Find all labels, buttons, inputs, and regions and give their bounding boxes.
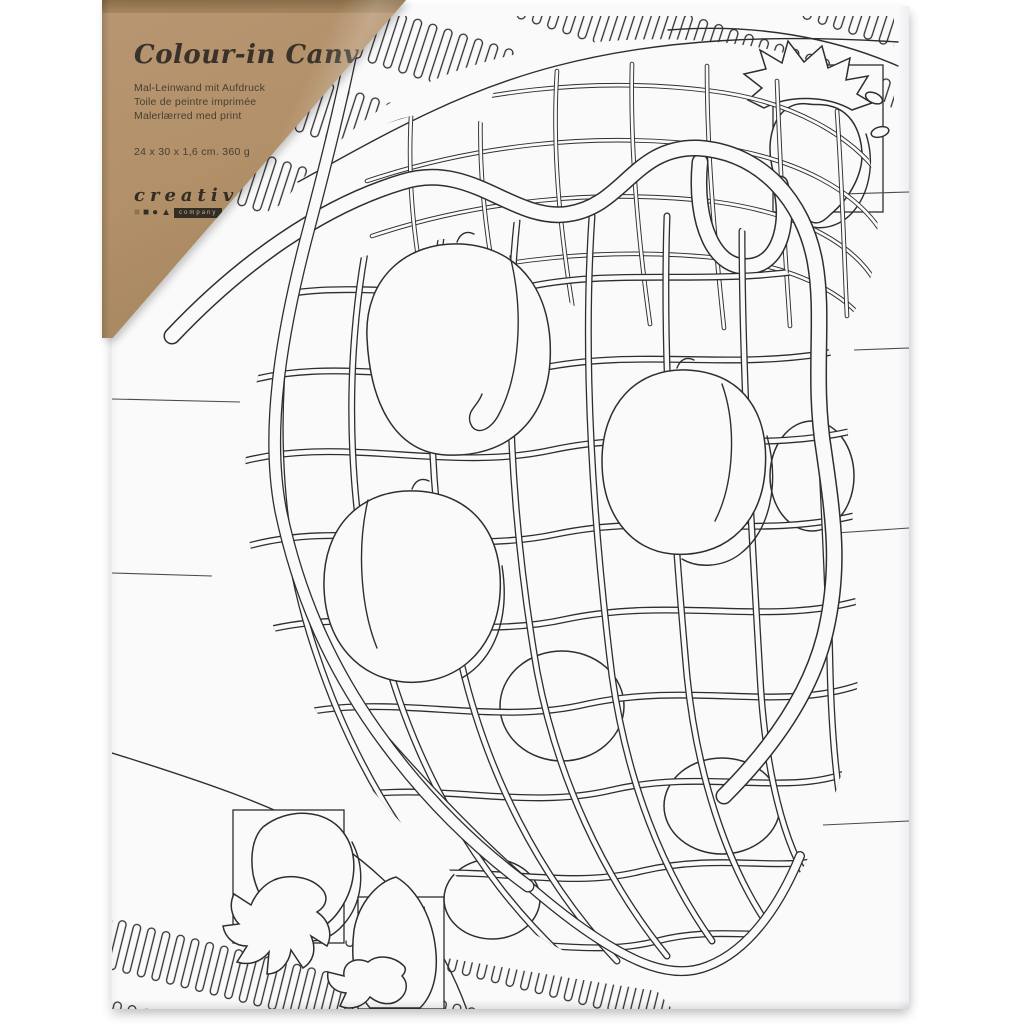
peach-bottom-left — [324, 479, 504, 682]
peach-top-left — [367, 232, 551, 455]
brand-company-label: company — [174, 208, 222, 218]
logo-circle-icon: ● — [152, 208, 158, 218]
logo-triangle-icon: ▲ — [161, 208, 171, 218]
logo-square-light-icon: ■ — [134, 208, 140, 218]
logo-square-icon: ■ — [143, 208, 149, 218]
product-photo: .k{stroke:#2e2e2e;fill:none;stroke-linec… — [0, 0, 1024, 1024]
